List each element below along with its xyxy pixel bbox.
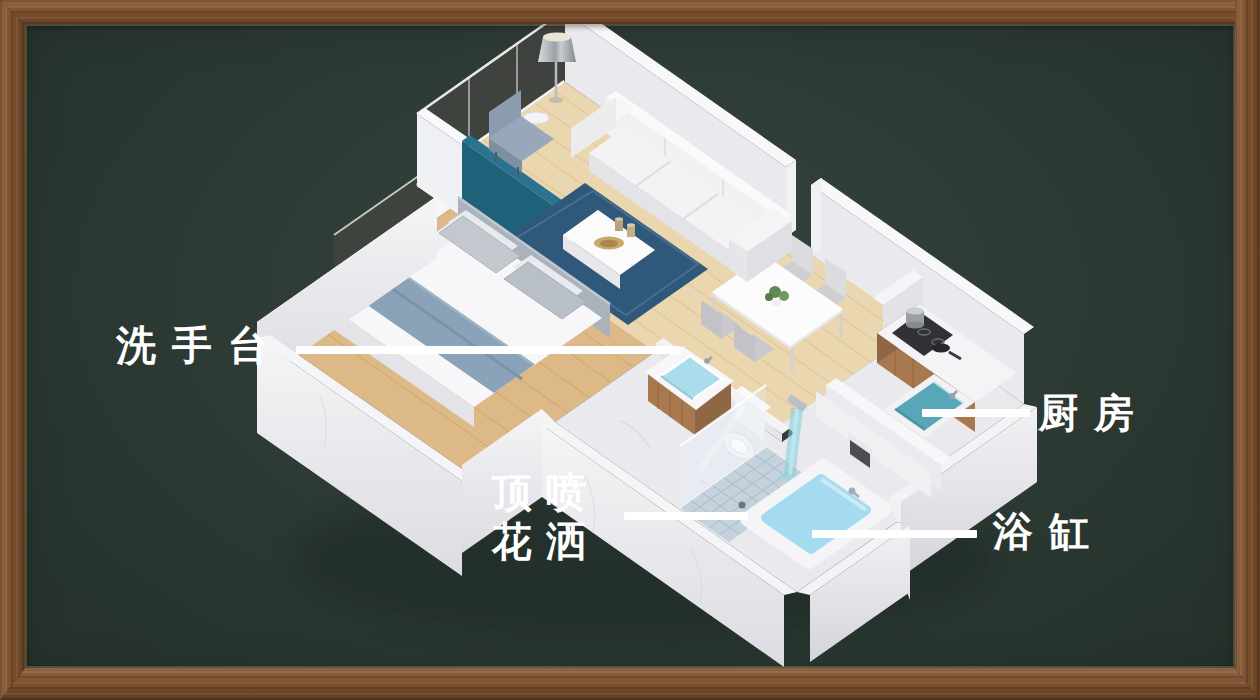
label-shower-line1: 顶喷 (492, 468, 600, 517)
chalkboard-floor-plan: { "board": { "background": "#2d3b34", "f… (0, 0, 1260, 700)
label-line-bathtub (812, 530, 977, 538)
frame-left (0, 0, 25, 700)
label-shower: 顶喷 花洒 (492, 468, 600, 566)
frame-bottom (0, 668, 1260, 700)
label-washbasin: 洗手台 (116, 322, 284, 369)
label-line-washbasin (296, 346, 680, 354)
label-line-kitchen (922, 409, 1030, 417)
cooking-pot (906, 308, 924, 329)
frame-top (0, 0, 1260, 24)
frame-right (1235, 0, 1260, 700)
label-line-shower (624, 512, 748, 520)
decor-bowl (594, 237, 624, 250)
label-shower-line2: 花洒 (492, 517, 600, 566)
shower-drain (739, 502, 746, 509)
label-kitchen: 厨房 (1038, 390, 1150, 437)
label-bathtub: 浴缸 (993, 508, 1105, 555)
